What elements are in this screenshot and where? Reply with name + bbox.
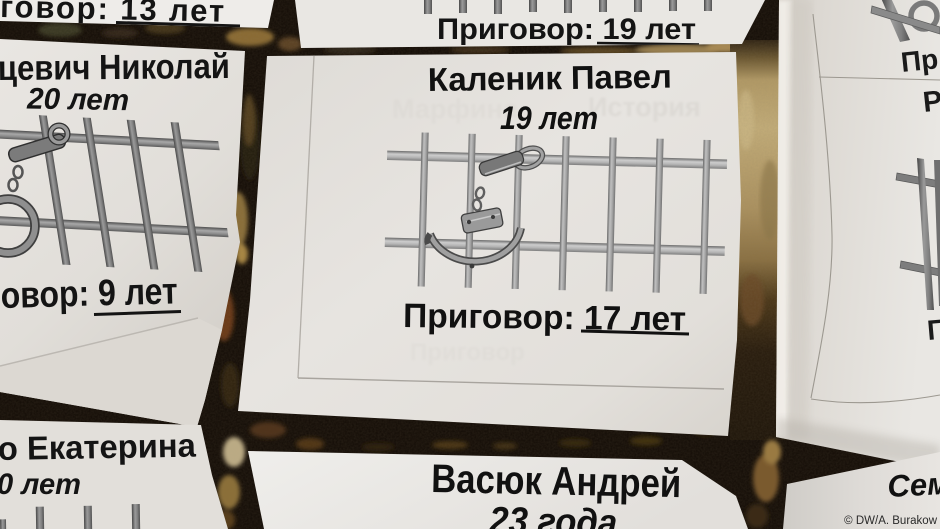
svg-text:Васюк Андрей: Васюк Андрей [431, 457, 682, 506]
svg-text:Сем: Сем [887, 466, 940, 504]
svg-text:овор: 9 лет: овор: 9 лет [0, 270, 178, 316]
svg-text:20 лет: 20 лет [26, 82, 130, 117]
svg-text:Каленик Павел: Каленик Павел [428, 58, 672, 98]
svg-text:© DW/A. Burakow: © DW/A. Burakow [844, 515, 938, 527]
svg-text:23 года: 23 года [488, 500, 618, 529]
svg-text:Приговор: 19 лет: Приговор: 19 лет [437, 13, 696, 46]
svg-text:о Екатерина: о Екатерина [0, 427, 197, 467]
svg-text:19 лет: 19 лет [500, 100, 598, 136]
svg-text:Р: Р [921, 85, 940, 119]
svg-text:П: П [926, 313, 940, 346]
svg-text:История: История [588, 92, 701, 122]
svg-text:0 лет: 0 лет [0, 468, 81, 501]
svg-text:Пр: Пр [899, 43, 939, 78]
svg-text:Приговор: Приговор [410, 339, 525, 366]
